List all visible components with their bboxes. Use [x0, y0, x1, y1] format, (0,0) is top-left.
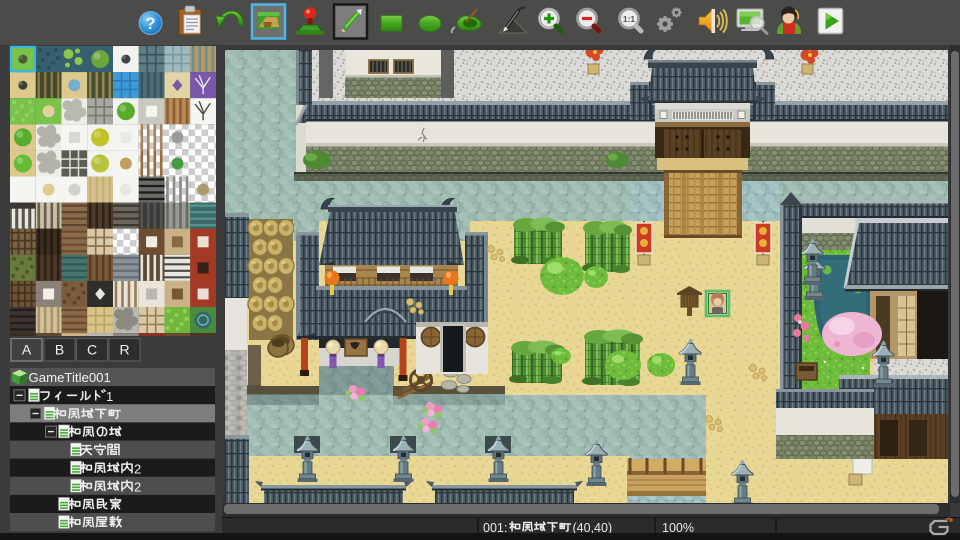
svg-text:?: ?	[145, 14, 155, 33]
svg-text:2: 2	[134, 480, 141, 495]
svg-text:A: A	[22, 342, 32, 358]
svg-text:C: C	[87, 342, 97, 358]
svg-text:2: 2	[134, 461, 141, 476]
svg-text:B: B	[55, 342, 64, 358]
svg-text:GameTitle001: GameTitle001	[29, 370, 111, 385]
svg-text:R: R	[119, 342, 129, 358]
svg-text:1:1: 1:1	[623, 14, 636, 24]
svg-text:1: 1	[106, 389, 113, 404]
